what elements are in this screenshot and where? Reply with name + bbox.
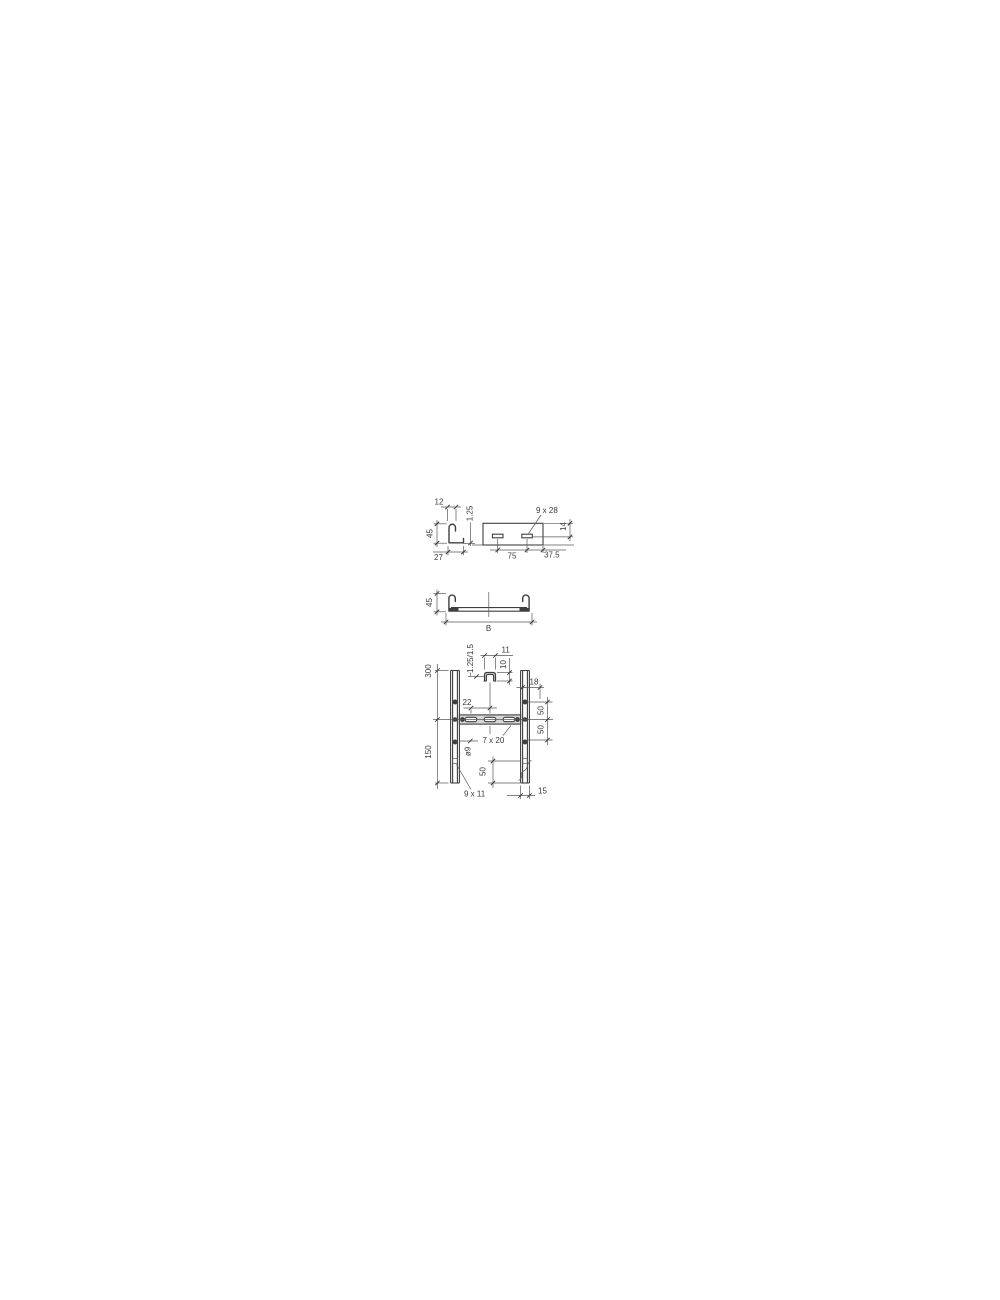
dim-slot-size-label: 9 x 28: [536, 506, 558, 515]
drawing-canvas: 12 1.25 45 27 9 x 28 14: [0, 0, 1000, 1300]
rail-square-hole: [453, 759, 458, 764]
dim-end-length-label: 150: [424, 745, 433, 759]
dim-slot-pitch-label: 75: [508, 552, 517, 561]
dim-section-width-label: B: [486, 624, 491, 633]
side-rail-profile-view: 12 1.25 45 27: [426, 498, 476, 563]
dim-profile-height-label: 45: [426, 529, 435, 538]
dim-section-height-label: 45: [425, 598, 434, 607]
rail-hole: [523, 700, 528, 705]
side-rail-elevation-view: 9 x 28 14 75 37.5: [472, 506, 574, 561]
rail-square-hole: [523, 759, 528, 764]
left-rail: [451, 671, 460, 784]
rail-hole: [453, 700, 458, 705]
rail-hole: [523, 740, 528, 745]
dim-slot-pitch-label: 22: [463, 698, 472, 707]
dim-end-hole-offset-label: 50: [479, 767, 488, 776]
right-foot: [520, 608, 529, 611]
plan-view: 11 10 1.25/1.5 22 300 150 18: [424, 643, 553, 799]
dim-rail-width-label: 15: [538, 787, 547, 796]
dim-flange-label: 18: [530, 678, 539, 687]
dim-rung-thickness-label: 1.25/1.5: [466, 643, 475, 672]
dim-flange-width-label: 27: [434, 553, 443, 562]
rail-profile-shape: [449, 524, 464, 543]
rail-slot: [522, 534, 533, 538]
technical-drawing: 12 1.25 45 27 9 x 28 14: [0, 0, 1000, 1300]
dim-rung-pitch-label: 300: [424, 664, 433, 678]
dim-hole-pitch-1-label: 50: [537, 706, 546, 715]
dim-thickness-label: 1.25: [466, 505, 475, 521]
left-foot: [450, 608, 459, 611]
rung-section-detail: [484, 673, 496, 681]
dim-hole-pitch-2-label: 50: [537, 725, 546, 734]
rail-hole: [453, 740, 458, 745]
cross-section-view: 45 B: [425, 590, 537, 634]
dim-rung-width-label: 11: [502, 646, 511, 655]
dim-slot-end-offset-label: 37.5: [544, 551, 560, 560]
dim-rung-slot-label: 7 x 20: [483, 736, 505, 745]
dim-hook-width-label: 12: [435, 498, 444, 507]
rail-slot: [493, 534, 504, 538]
dim-end-slot-label: 9 x 11: [464, 790, 486, 799]
dim-rung-height-label: 10: [499, 660, 508, 669]
dim-slot-height-label: 14: [559, 522, 568, 531]
dim-hole-dia-label: ø9: [464, 746, 473, 756]
